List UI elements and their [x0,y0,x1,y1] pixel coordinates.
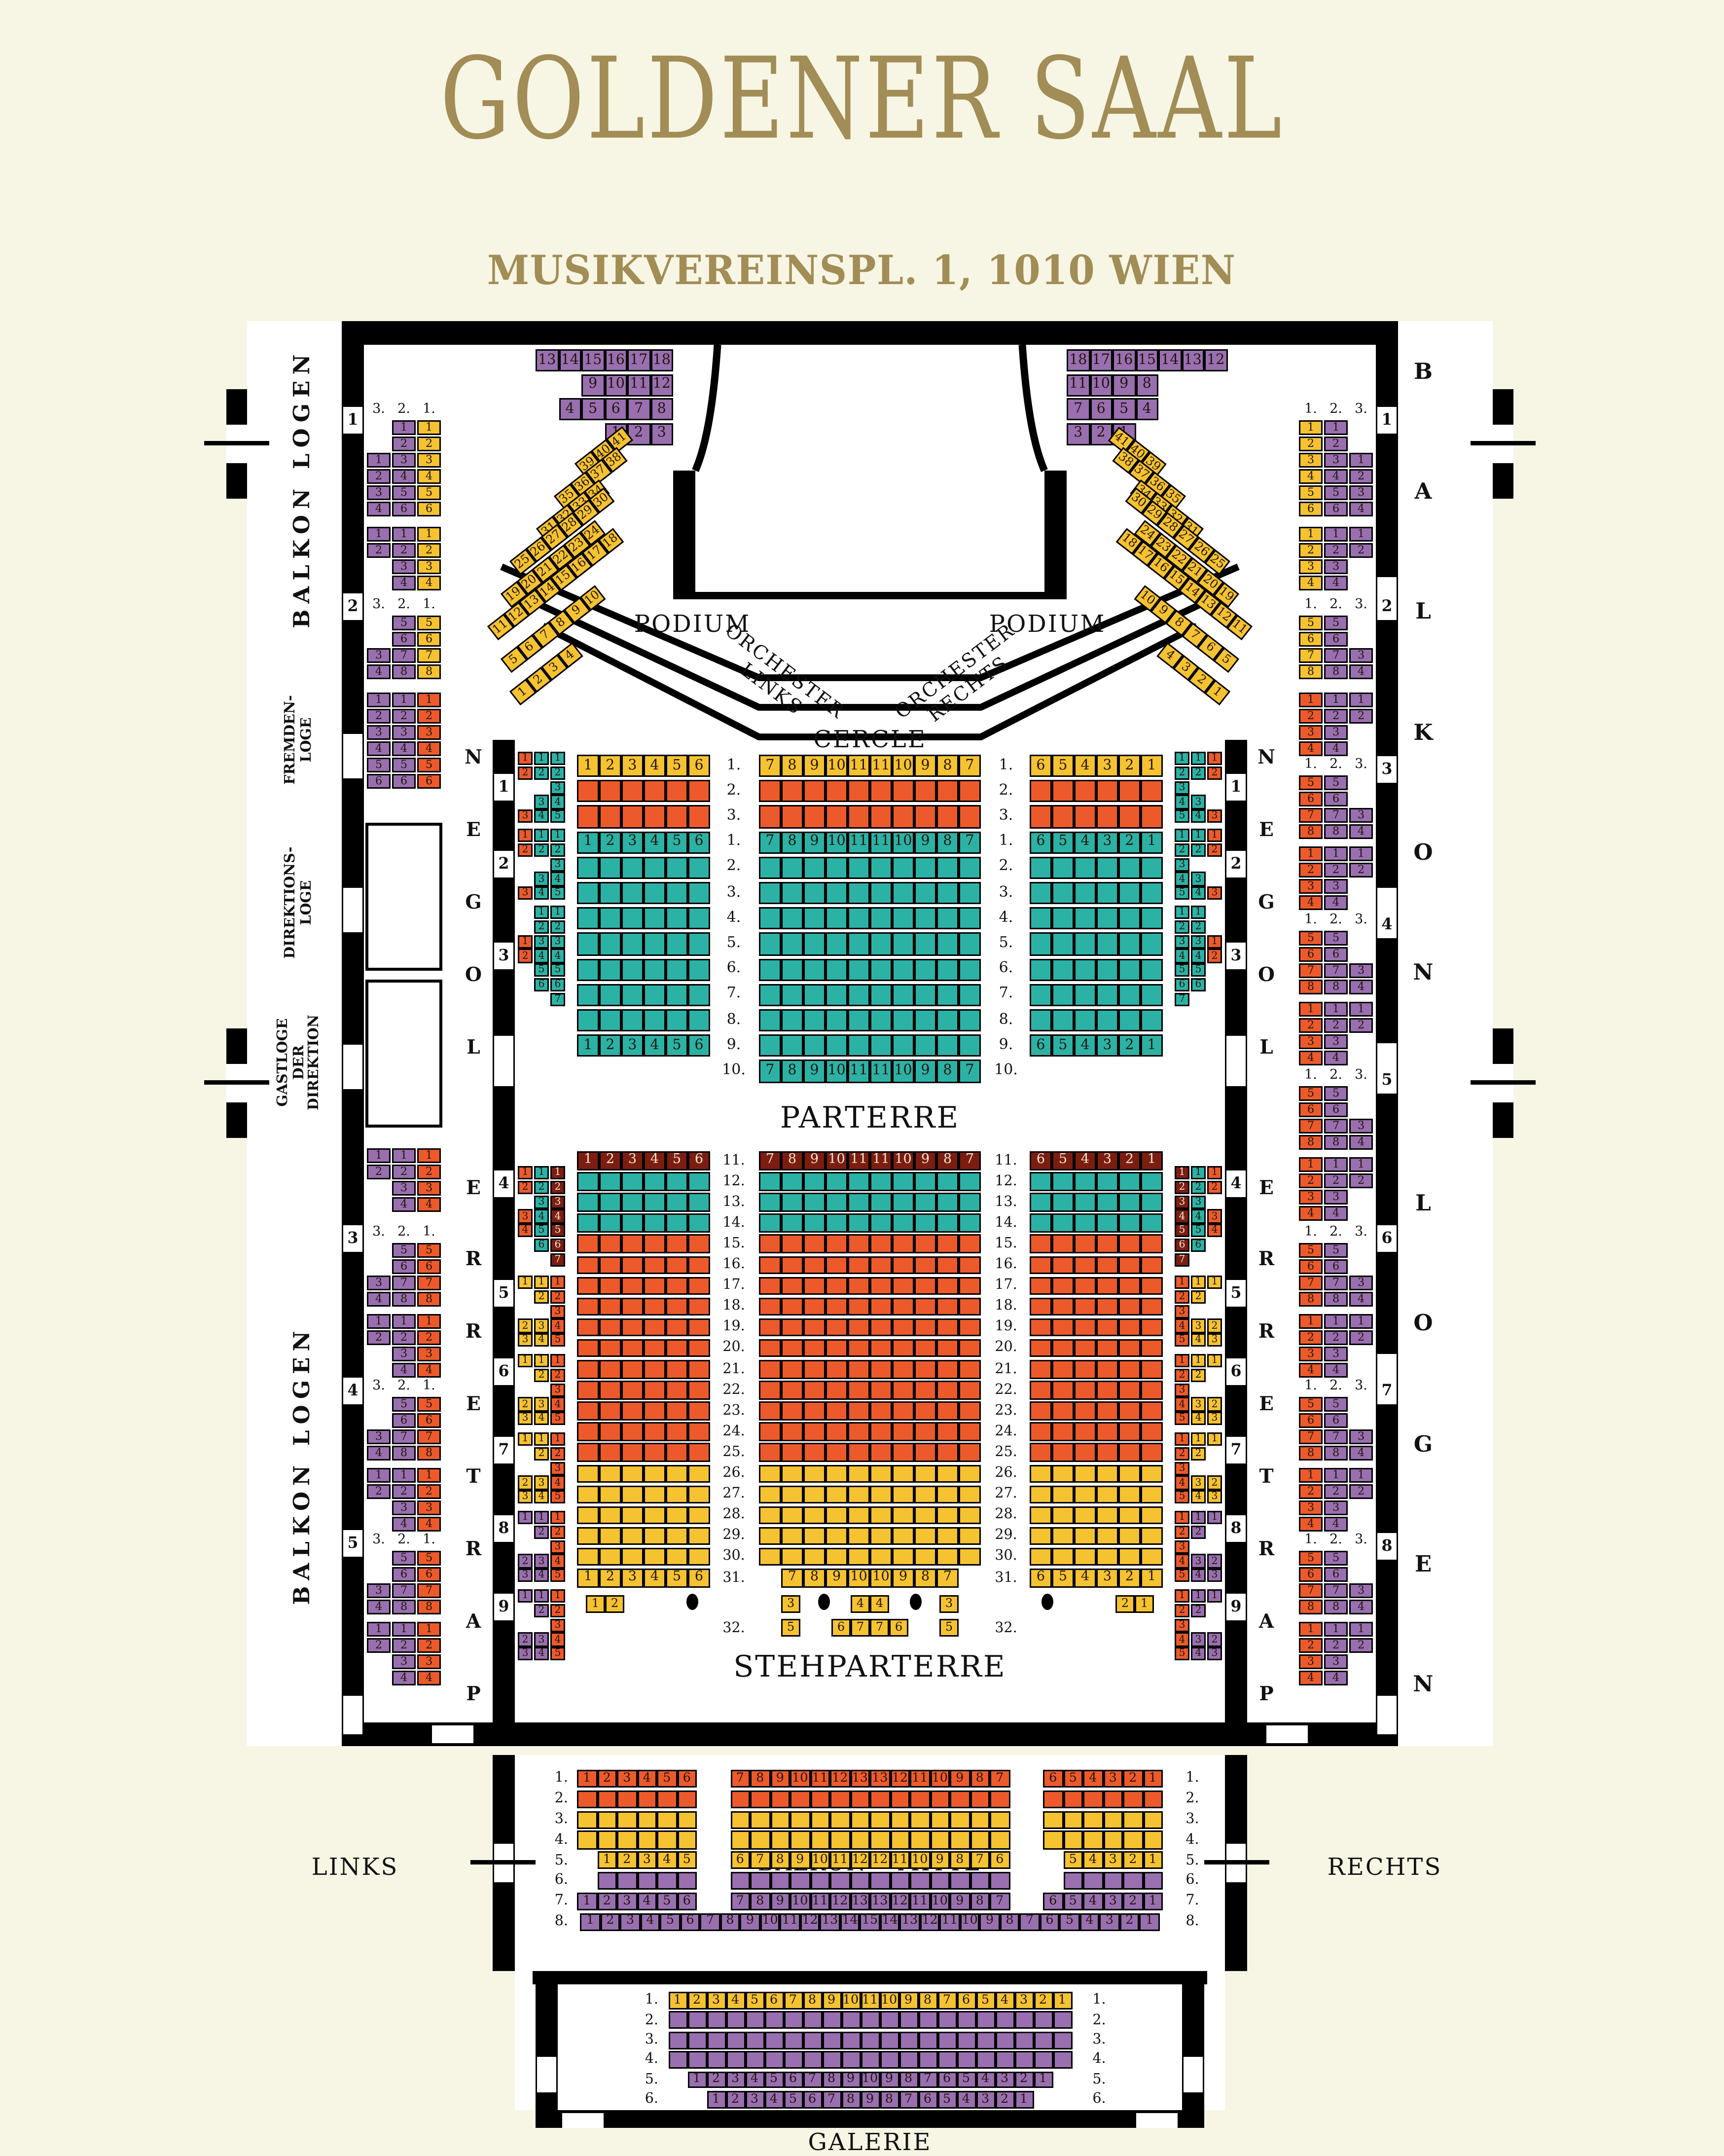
seat: 1 [534,1511,549,1525]
seat: 2 [1324,437,1348,451]
seat: 2 [550,920,565,934]
seat [759,1277,781,1295]
seat: 8 [1324,664,1348,679]
seat: 5 [1299,1086,1323,1101]
seat [1030,1360,1052,1379]
seat [668,2031,687,2048]
seat [781,1423,803,1441]
seat [770,1790,790,1808]
seat [637,1790,657,1808]
seat: 3 [518,1334,533,1348]
seat: 4 [392,469,416,484]
row-label: 29. [713,1527,754,1545]
seat [644,805,666,828]
seat: 2 [392,1165,416,1179]
seat: 1 [534,1276,549,1289]
seat: 1 [518,1354,533,1368]
seat: 10 [910,1852,930,1870]
seat: 11 [810,1892,830,1910]
seat: 7 [959,755,981,777]
seat: 3 [367,1429,391,1444]
loge-number: 7 [1226,1437,1246,1463]
vertical-letter: L [467,1037,480,1059]
row-label: 3. [1349,1533,1373,1550]
seat: 6 [1299,1567,1323,1582]
seat: 1 [392,693,416,707]
seat [644,1339,666,1358]
seat: 8 [1324,1292,1348,1307]
seat [826,1443,848,1462]
seat [644,1193,666,1212]
seat [826,1527,848,1545]
seat: 1 [534,1589,549,1603]
seat: 3 [1299,453,1323,468]
seat [936,1548,959,1567]
seat: 3 [550,1540,565,1554]
row-label: 15. [985,1235,1027,1253]
seat [577,780,599,803]
seat [726,2011,745,2029]
seat: 6 [1324,1413,1348,1428]
vertical-letter: E [1259,1177,1274,1200]
seat: 6 [990,1852,1010,1870]
seating-plan-canvas: GOLDENER SAAL MUSIKVEREINSPL. 1, 1010 WI… [0,0,1724,2156]
seat: 5 [417,1397,441,1412]
seat [870,1527,892,1545]
seat: 8 [417,664,441,679]
seat: 4 [1175,1633,1189,1646]
seat: 7 [392,648,416,663]
seat: 5 [1299,931,1323,946]
vertical-letter: G [1414,1430,1433,1457]
seat [910,1790,930,1808]
seat [1030,1506,1052,1525]
seat: 4 [1175,795,1189,809]
seat: 11 [940,1913,960,1931]
seat: 5 [417,1551,441,1566]
seat: 7 [990,1892,1010,1910]
seat: 5 [550,810,565,824]
seat: 3 [1299,1500,1323,1515]
seat: 2 [1207,766,1222,780]
seat: 2 [1299,863,1323,877]
seat: 1 [518,1511,533,1525]
seat [899,2011,918,2029]
seat [936,1464,959,1483]
seat: 4 [518,1224,533,1238]
seat: 1 [417,1468,441,1483]
seat: 7 [392,1583,416,1598]
seat: 3 [707,1992,726,2009]
row-label: 3. [367,1533,391,1550]
seat: 1 [1175,1276,1189,1289]
seat [1118,1214,1141,1233]
seat: 6 [1191,1239,1206,1252]
seat [1141,1443,1163,1462]
row-label: 8. [527,1913,568,1931]
seat: 1 [550,1354,565,1368]
seat [1074,856,1096,879]
seat [688,1214,710,1233]
seat [759,908,781,930]
seat [892,1318,914,1337]
vertical-letter: R [1258,1539,1274,1561]
row-label: 1. [1299,1379,1323,1396]
seat: 6 [1175,1239,1189,1252]
vertical-letter: K [1413,719,1433,745]
seat [577,856,599,879]
row-label: 5. [527,1851,568,1869]
seat: 1 [1191,1354,1206,1368]
seat: 4 [392,1197,416,1212]
loge-number: 1 [343,407,362,434]
seat [1118,1506,1141,1525]
seat [599,1360,621,1379]
seat: 1 [1207,1276,1222,1289]
seat: 4 [1324,1517,1348,1532]
seat [759,1339,781,1358]
seat: 4 [417,1671,441,1685]
seat [1074,1506,1096,1525]
seat: 6 [1299,1259,1323,1274]
seat: 1 [1175,1432,1189,1446]
seat [781,1339,803,1358]
row-label: 3. [1349,1379,1373,1396]
seat [781,1193,803,1212]
seat: 9 [914,1060,936,1083]
seat [644,1277,666,1295]
seat [621,1172,644,1191]
seat [707,2031,726,2048]
seat: 10 [1090,374,1113,396]
row-label: 19. [985,1318,1027,1337]
seat: 1 [577,1035,599,1058]
seat [914,1402,936,1421]
seat: 8 [1000,1913,1020,1931]
seat: 2 [534,1447,549,1461]
seat: 7 [1299,963,1323,978]
seat [1074,1548,1096,1567]
row-label: 32. [713,1620,754,1639]
seat: 3 [621,1569,644,1587]
seat [759,933,781,955]
seat [803,1214,826,1233]
row-label: 23. [985,1402,1027,1420]
seat: 4 [550,1633,565,1646]
seat [959,1381,981,1399]
seat [666,1381,688,1399]
seat: 1 [1349,1002,1373,1017]
seat: 10 [870,1569,892,1587]
seat [1123,1831,1143,1849]
seat [1074,1381,1096,1399]
seat [577,1423,599,1441]
seat [599,1297,621,1316]
seat: 5 [1175,1491,1189,1504]
row-label: 15. [713,1235,754,1253]
seat [599,1339,621,1358]
seat [1014,2031,1034,2048]
seat: 1 [1299,693,1323,707]
row-label: 7. [713,986,754,1005]
seat: 7 [1324,1119,1348,1133]
seat: 2 [518,949,533,963]
seat [1096,1443,1118,1462]
loge-number: 8 [1226,1515,1246,1542]
seat: 7 [750,1852,770,1870]
seat: 2 [518,1476,533,1490]
seat [848,805,870,828]
seat: 11 [627,374,650,396]
seat [870,1872,890,1890]
row-label: 5. [713,935,754,954]
seat [1074,1360,1096,1379]
seat: 2 [1118,1569,1141,1587]
seat [848,1443,870,1462]
seat [899,2051,918,2069]
row-label: 2. [392,1225,416,1242]
seat [781,780,803,803]
seat: 5 [1299,775,1323,790]
seat [936,908,959,930]
seat: 4 [417,469,441,484]
seat [892,1339,914,1358]
seat: 5 [1175,1334,1189,1348]
seat [666,1009,688,1032]
row-label: 6. [985,960,1027,979]
seat: 4 [1074,831,1096,854]
seat: 3 [1067,423,1090,445]
seat: 1 [668,1992,687,2009]
seat: 1 [1191,1276,1206,1289]
seat: 1 [367,1314,391,1329]
row-label: 4. [617,2051,658,2069]
seat [995,2051,1014,2069]
seat [1141,1381,1163,1399]
seat [810,1872,830,1890]
seat [759,1506,781,1525]
seat [750,1872,770,1890]
door-slot [537,2057,556,2092]
seat: 4 [1324,895,1348,910]
label-line: LOGE [300,718,317,763]
seat: 1 [392,1622,416,1637]
seat: 2 [1349,863,1373,877]
seat: 16 [1113,349,1136,371]
seat [759,856,781,879]
seat [850,1831,870,1849]
seat: 7 [959,1060,981,1083]
seat: 2 [599,1151,621,1170]
seat [914,1527,936,1545]
seat: 2 [707,2071,726,2088]
seat [914,1464,936,1483]
seat [1141,1402,1163,1421]
seat [759,1193,781,1212]
balkon-logen-label-left-top: BALKON LOGEN [290,296,317,681]
seat: 5 [534,964,549,978]
seat: 1 [392,1314,416,1329]
seat [936,1256,959,1275]
seat: 6 [1030,831,1052,854]
seat [781,1506,803,1525]
seat: 6 [803,2091,822,2108]
seat [644,882,666,905]
seat: 9 [899,1992,918,2009]
seat: 5 [657,1892,677,1910]
seat [759,1527,781,1545]
seat: 8 [1299,1292,1323,1307]
vertical-letter: O [465,964,482,987]
seat: 3 [1175,1462,1189,1475]
seat: 3 [367,648,391,663]
seat: 8 [970,1892,990,1910]
seat: 9 [803,755,826,777]
seat [990,1872,1010,1890]
seat [892,780,914,803]
seat [826,1035,848,1058]
seat: 5 [392,1551,416,1566]
row-label: 26. [713,1464,754,1483]
seat [1030,1009,1052,1032]
seat [959,984,981,1006]
seat [936,1318,959,1337]
loge-number: 4 [494,1170,513,1197]
seat [688,1548,710,1567]
seat: 9 [822,1992,841,2009]
seat: 2 [518,1554,533,1568]
seat: 1 [1143,1770,1163,1788]
seat [1096,1485,1118,1504]
seat: 14 [880,1913,900,1931]
seat: 6 [392,774,416,789]
seat: 3 [417,559,441,574]
seat [1096,933,1118,955]
seat: 5 [1299,485,1323,500]
vertical-letter: T [1259,1467,1273,1489]
seat [870,1318,892,1337]
seat [1030,1485,1052,1504]
seat: 8 [1299,1600,1323,1614]
seat: 4 [392,741,416,756]
seat: 2 [550,1447,565,1461]
seat [599,1464,621,1483]
seat [621,1402,644,1421]
seat [597,1831,617,1849]
seat [1074,1527,1096,1545]
seat: 12 [830,1770,850,1788]
seat [1074,1193,1096,1212]
seat: 8 [899,2071,918,2088]
seat [892,1360,914,1379]
seat: 7 [781,1569,803,1587]
seat: 4 [550,1209,565,1223]
seat [957,2051,976,2069]
seat [1141,1256,1163,1275]
vertical-letter: E [466,1177,481,1200]
seat [666,958,688,981]
seat: 6 [1030,1151,1052,1170]
seat [830,1831,850,1849]
seat: 1 [550,829,565,842]
seat [666,1548,688,1567]
vertical-letter: R [466,1249,481,1272]
seat: 2 [392,543,416,558]
seat [1074,1214,1096,1233]
vertical-letter: G [465,892,481,914]
seat [892,933,914,955]
seat [1096,1172,1118,1191]
seat: 3 [617,1892,637,1910]
seat [666,1464,688,1483]
row-label: 30. [985,1548,1027,1566]
seat [950,1831,970,1849]
seat [666,1527,688,1545]
seat: 4 [1299,895,1323,910]
seat [1030,1402,1052,1421]
seat [918,2011,937,2029]
seat: 5 [417,1243,441,1258]
seat: 3 [367,1583,391,1598]
seat: 4 [637,1770,657,1788]
seat: 9 [914,755,936,777]
seat: 2 [1175,766,1189,780]
seat: 7 [1299,1276,1323,1290]
seat: 7 [550,1253,565,1267]
seat [870,1506,892,1525]
vertical-letter: E [466,1394,481,1417]
seat [599,1214,621,1233]
seat [644,780,666,803]
seat [1074,1339,1096,1358]
row-label: 3. [713,883,754,903]
seat: 4 [957,2091,976,2108]
seat: 3 [1175,1305,1189,1318]
seat [1034,2011,1053,2029]
seat [1030,1193,1052,1212]
seat: 3 [1175,1383,1189,1397]
seat [959,856,981,879]
seat [577,882,599,905]
seat [914,1172,936,1191]
seat: 4 [1074,1569,1096,1587]
seat: 2 [1207,1397,1222,1411]
seat [577,908,599,930]
seat [803,805,826,828]
seat: 2 [367,1638,391,1653]
seat [910,1811,930,1829]
seat [1141,856,1163,879]
seat [830,1872,850,1890]
seat: 5 [666,831,688,854]
seat: 3 [620,1913,641,1931]
seat: 5 [1063,1770,1083,1788]
seat: 1 [367,453,391,468]
seat [759,882,781,905]
row-label: 21. [713,1360,754,1378]
seat: 1 [392,420,416,435]
seat: 3 [550,781,565,795]
seat: 1 [550,1432,565,1446]
seat: 1 [550,1276,565,1289]
seat [880,2031,899,2048]
row-label: 1. [1299,913,1323,930]
seat: 8 [720,1913,740,1931]
seat [936,1443,959,1462]
seat: 2 [534,1368,549,1382]
seat [759,1381,781,1399]
seat: 3 [1096,1035,1118,1058]
